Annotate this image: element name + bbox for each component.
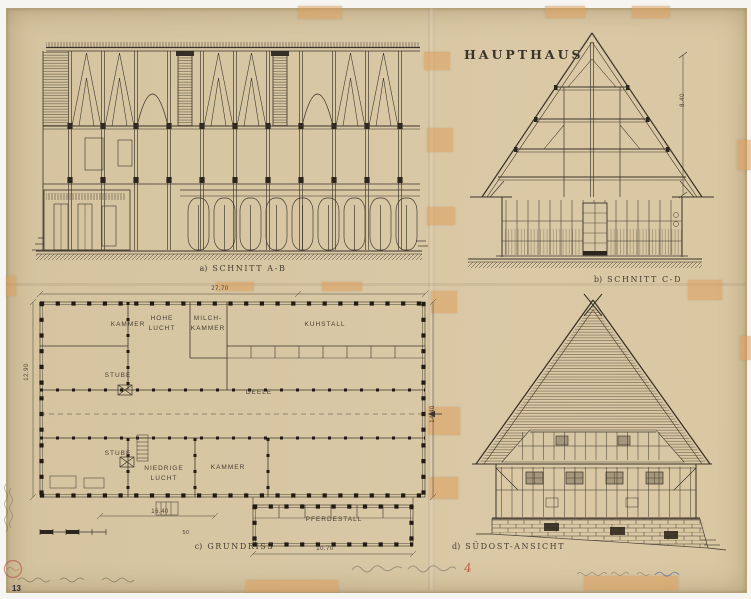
room-label-niedrige-lucht: NIEDRIGE LUCHT	[134, 464, 194, 484]
page-number: 13	[12, 584, 21, 593]
tape-patch	[740, 336, 751, 360]
dim-plan-right: 14.40	[430, 394, 436, 434]
plan-prefix: c)	[195, 542, 203, 551]
dim-plan-top: 27.70	[195, 286, 245, 292]
room-label-kuhstall: KUHSTALL	[285, 320, 365, 330]
section-cd-prefix: b)	[594, 275, 602, 284]
tape-patch	[632, 6, 670, 18]
room-label-kammer2: KAMMER	[198, 463, 258, 473]
pencil-note-scribble	[350, 560, 468, 576]
stamp-line-scribble	[575, 568, 687, 580]
dim-plan-left: 12.90	[24, 352, 30, 392]
dim-plan-scale-mark: 50	[174, 530, 198, 536]
section-ab-caption: a)SCHNITT A-B	[178, 264, 308, 273]
dim-cd-height: 8.40	[680, 80, 686, 120]
plan-caption: c)GRUNDRISS	[172, 542, 297, 551]
dim-plan-bottom-right: 10.70	[300, 546, 350, 552]
red-annotation-mark: 4	[463, 561, 472, 576]
room-label-stube1: STUBE	[88, 371, 148, 381]
tape-patch	[6, 276, 16, 296]
section-cd-label: SCHNITT C-D	[607, 275, 682, 284]
room-label-pferdestall: PFERDESTALL	[298, 515, 370, 525]
room-label-deele: DEELE	[233, 388, 285, 398]
tape-patch	[246, 580, 338, 592]
room-label-milchkammer: MILCH- KAMMER	[184, 314, 232, 334]
section-ab-drawing	[30, 38, 430, 278]
plan-label: GRUNDRISS	[207, 542, 274, 551]
page-title: HAUPTHAUS	[464, 47, 584, 62]
dim-plan-bottom-left: 16.40	[135, 509, 185, 515]
elevation-label: SÜDOST-ANSICHT	[465, 542, 565, 551]
elevation-caption: d)SÜDOST-ANSICHT	[452, 542, 612, 551]
margin-scribble	[1, 482, 15, 546]
scanned-drawing-page: { "title": "HAUPTHAUS", "drawings": { "s…	[0, 0, 751, 599]
caption-scribble	[16, 574, 146, 586]
room-label-hohe-lucht: HOHE LUCHT	[136, 314, 188, 334]
section-ab-label: SCHNITT A-B	[212, 264, 286, 273]
room-label-stube2: STUBE	[88, 449, 148, 459]
elevation-prefix: d)	[452, 542, 460, 551]
tape-patch	[545, 6, 585, 18]
section-cd-drawing	[450, 25, 715, 275]
section-ab-prefix: a)	[200, 264, 208, 273]
tape-patch	[298, 6, 342, 19]
tape-patch	[737, 140, 751, 170]
floor-plan-drawing	[28, 288, 443, 563]
elevation-drawing	[448, 292, 733, 562]
section-cd-caption: b)SCHNITT C-D	[578, 275, 698, 284]
